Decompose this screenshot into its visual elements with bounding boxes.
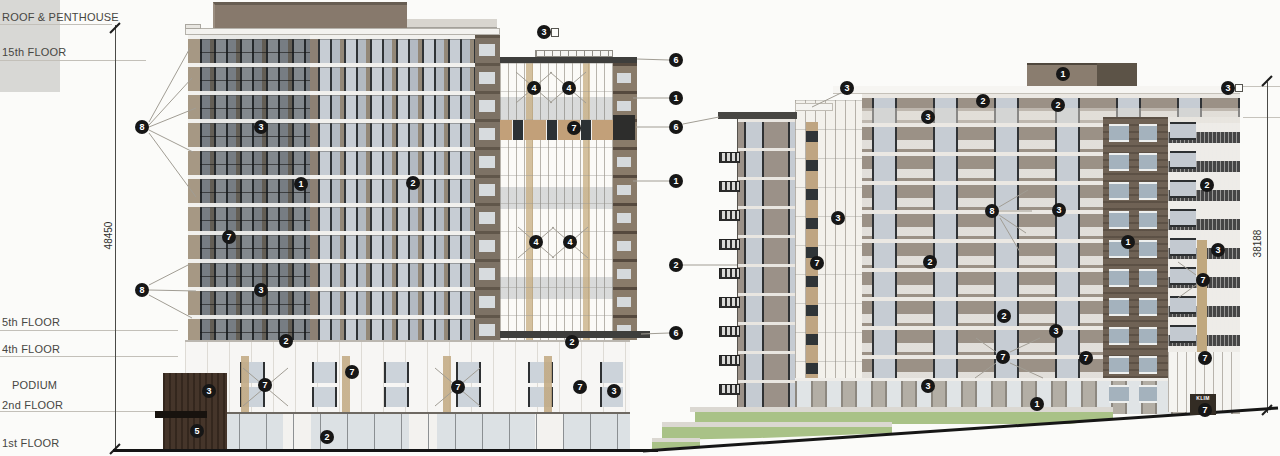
callout-3: 3	[254, 283, 268, 297]
callout-6: 6	[669, 120, 683, 134]
callout-2: 2	[320, 430, 334, 444]
callout-1: 1	[669, 174, 683, 188]
callout-8: 8	[135, 120, 149, 134]
callout-1: 1	[1030, 397, 1044, 411]
callout-3: 3	[921, 110, 935, 124]
leader-line	[149, 290, 196, 291]
callout-7: 7	[573, 380, 587, 394]
leader-line	[1178, 262, 1196, 275]
leader-line	[1010, 338, 1040, 352]
callout-1: 1	[1121, 235, 1135, 249]
callout-1: 1	[669, 91, 683, 105]
callout-3: 3	[607, 384, 621, 398]
callout-4: 4	[527, 81, 541, 95]
callout-1: 1	[294, 177, 308, 191]
callout-3: 3	[1221, 81, 1235, 95]
callout-7: 7	[810, 256, 824, 270]
leader-lines	[0, 0, 1280, 456]
leader-line	[637, 59, 669, 60]
callout-6: 6	[669, 326, 683, 340]
leader-line	[641, 333, 669, 334]
callout-4: 4	[563, 235, 577, 249]
callout-7: 7	[567, 121, 581, 135]
leader-line	[149, 295, 192, 318]
callout-3: 3	[1049, 324, 1063, 338]
leader-line	[999, 190, 1028, 207]
elevation-drawing: ROOF & PENTHOUSE15th FLOOR5th FLOOR4th F…	[0, 0, 1280, 456]
callout-7: 7	[1079, 351, 1093, 365]
callout-7: 7	[1198, 403, 1212, 417]
callout-2: 2	[406, 176, 420, 190]
callout-2: 2	[279, 334, 293, 348]
leader-line	[149, 130, 193, 152]
leader-line	[149, 48, 190, 122]
callout-3: 3	[537, 25, 551, 39]
callout-3: 3	[202, 384, 216, 398]
callout-2: 2	[976, 94, 990, 108]
callout-7: 7	[222, 230, 236, 244]
callout-6: 6	[669, 53, 683, 67]
callout-5: 5	[190, 424, 204, 438]
callout-3: 3	[840, 81, 854, 95]
leader-line	[975, 363, 996, 378]
leader-line	[1010, 363, 1043, 378]
callout-1: 1	[1056, 67, 1070, 81]
callout-7: 7	[258, 378, 272, 392]
callout-7: 7	[996, 350, 1010, 364]
callout-3: 3	[831, 211, 845, 225]
leader-line	[976, 338, 996, 352]
callout-4: 4	[562, 81, 576, 95]
leader-line	[1178, 285, 1196, 298]
callout-3: 3	[921, 379, 935, 393]
callout-2: 2	[669, 258, 683, 272]
callout-3: 3	[1211, 243, 1225, 257]
callout-2: 2	[565, 335, 579, 349]
leader-line	[149, 264, 190, 285]
callout-7: 7	[1198, 351, 1212, 365]
callout-3: 3	[1052, 203, 1066, 217]
callout-2: 2	[923, 255, 937, 269]
callout-7: 7	[451, 380, 465, 394]
leader-line	[812, 93, 841, 107]
callout-8: 8	[135, 283, 149, 297]
leader-line	[1000, 218, 1020, 252]
leader-line	[149, 133, 196, 197]
callout-4: 4	[529, 235, 543, 249]
leader-line	[683, 117, 719, 124]
callout-7: 7	[1196, 273, 1210, 287]
callout-7: 7	[345, 365, 359, 379]
callout-3: 3	[254, 120, 268, 134]
callout-8: 8	[985, 204, 999, 218]
callout-2: 2	[1051, 98, 1065, 112]
callout-2: 2	[997, 309, 1011, 323]
callout-2: 2	[1200, 178, 1214, 192]
